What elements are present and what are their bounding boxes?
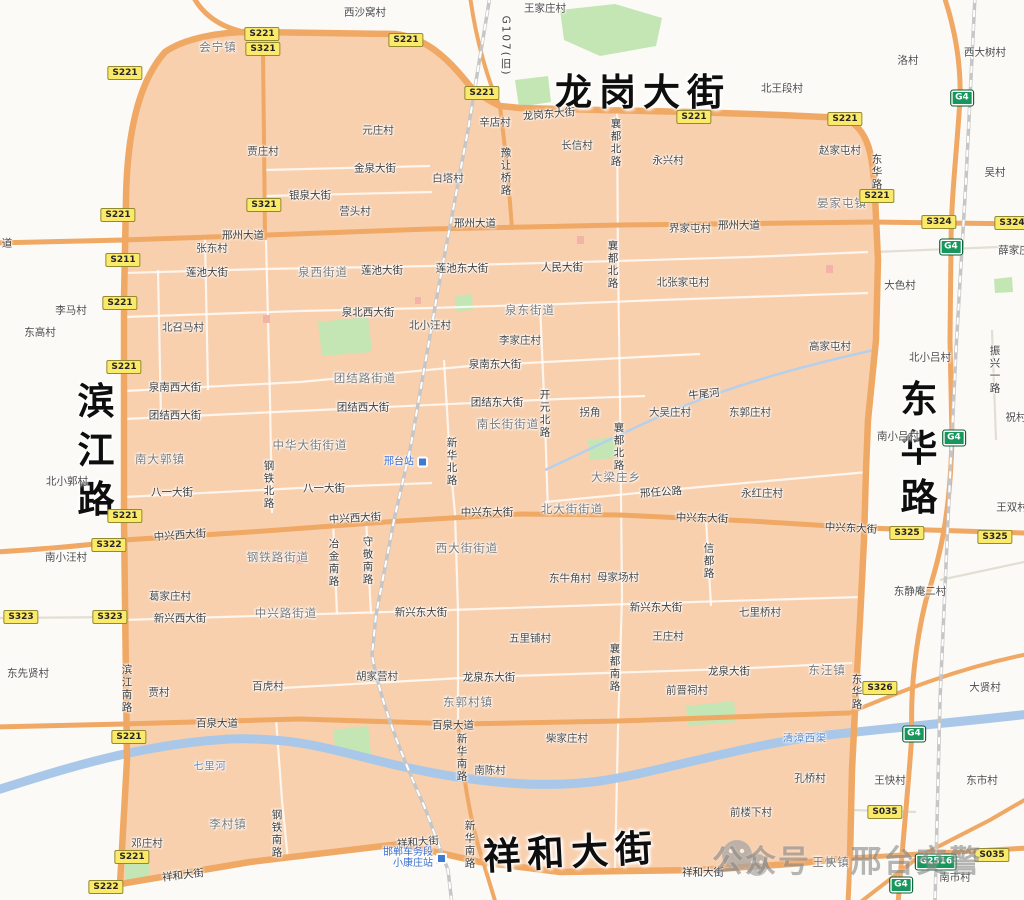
village-label: 东静庵二村	[894, 584, 947, 599]
route-shield: S321	[246, 198, 281, 212]
village-label: 李家庄村	[499, 333, 541, 348]
road-label: 新兴东大街	[630, 600, 683, 615]
road-label: 泉北西大街	[342, 305, 395, 320]
railway-station-icon	[417, 457, 428, 468]
road-label-vertical: 钢铁南路	[270, 809, 285, 859]
road-label: 莲池东大街	[436, 261, 489, 276]
road-label: 泉南东大街	[469, 357, 522, 372]
village-label: 柴家庄村	[546, 731, 588, 746]
boundary-street-name: 龙岗大街	[555, 62, 731, 116]
village-label: 南陈村	[474, 763, 506, 778]
village-label: 南小汪村	[45, 550, 87, 565]
village-label: 洛村	[898, 53, 919, 68]
station-name-line: 邯郸车务段	[383, 847, 433, 858]
village-label: 永兴村	[652, 153, 684, 168]
village-label: 辛店村	[479, 115, 511, 130]
village-label: 西沙窝村	[344, 5, 386, 20]
road-label: 团结西大街	[337, 400, 390, 415]
village-label: 王快村	[874, 773, 906, 788]
station-name-line: 邢台站	[384, 457, 414, 468]
boundary-street-name: 祥和大街	[482, 817, 661, 880]
route-shield: S221	[464, 86, 499, 100]
route-shield: S323	[92, 610, 127, 624]
village-label: 东市村	[966, 773, 998, 788]
road-label: 中兴东大街	[461, 505, 514, 520]
village-label: 贾村	[149, 685, 170, 700]
village-label: 邓庄村	[131, 836, 163, 851]
road-label: 邢州大道	[718, 218, 760, 233]
village-label: 营头村	[339, 204, 371, 219]
village-label: 王家庄村	[524, 1, 566, 16]
village-label: 北召马村	[162, 320, 204, 335]
village-label: 前晋祠村	[666, 683, 708, 698]
road-label: 牛尾河	[688, 385, 721, 403]
river-label: 清漳西渠	[783, 730, 827, 745]
road-label: 道	[2, 236, 13, 251]
village-label: 祝村	[1006, 410, 1024, 425]
town-label: 中兴路街道	[255, 605, 318, 621]
town-label: 南长街街道	[477, 416, 540, 432]
road-label-vertical: 守敬南路	[361, 536, 376, 586]
road-label: 团结东大街	[471, 395, 524, 410]
route-shield: S221	[102, 296, 137, 310]
road-label: 百泉大道	[196, 716, 238, 731]
route-shield: S222	[88, 880, 123, 894]
road-label-vertical: 振兴一路	[988, 345, 1003, 395]
village-label: 七里桥村	[739, 605, 781, 620]
road-label-vertical: 开元北路	[538, 389, 553, 439]
station-name: 邯郸车务段小康庄站	[383, 847, 433, 869]
road-label: 莲池大街	[186, 265, 228, 280]
road-label: 八一大街	[303, 481, 345, 496]
road-label: 八一大街	[151, 485, 193, 500]
road-label: 龙泉大街	[708, 664, 750, 679]
route-shield: S211	[105, 253, 140, 267]
village-label: 南小吕村	[877, 429, 919, 444]
railway-station-label: 邯郸车务段小康庄站	[383, 847, 447, 869]
village-label: 大色村	[884, 278, 916, 293]
route-shield: S321	[245, 42, 280, 56]
village-label: 贾庄村	[247, 144, 279, 159]
town-label: 李村镇	[209, 816, 247, 832]
town-label: 泉西街道	[298, 264, 348, 280]
road-label: 新兴东大街	[395, 605, 448, 620]
road-label: 百泉大道	[432, 718, 474, 733]
road-label: 中兴东大街	[824, 519, 877, 537]
village-label: 长信村	[561, 138, 593, 153]
route-shield: S221	[106, 360, 141, 374]
town-label: 钢铁路街道	[247, 549, 310, 565]
village-label: 东郭庄村	[729, 405, 771, 420]
village-label: 高家屯村	[809, 339, 851, 354]
route-shield: G4	[939, 239, 963, 256]
road-label: 邢州大道	[454, 216, 496, 231]
road-label-vertical: 钢铁北路	[262, 460, 277, 510]
route-shield: S221	[114, 850, 149, 864]
village-label: 北小吕村	[909, 350, 951, 365]
village-label: 北王段村	[761, 81, 803, 96]
road-label: 祥和大街	[161, 865, 205, 885]
railway-station-icon	[436, 853, 447, 864]
village-label: 五里铺村	[509, 631, 551, 646]
town-label: 北大街街道	[541, 501, 604, 517]
village-label: 大贤村	[969, 680, 1001, 695]
road-label: 莲池大街	[361, 263, 403, 278]
village-label: 永红庄村	[741, 486, 783, 501]
route-shield: S325	[889, 526, 924, 540]
road-label-vertical: 襄都北路	[612, 422, 627, 472]
river-label: 七里河	[194, 758, 227, 773]
route-shield: S221	[244, 27, 279, 41]
town-label: 泉东街道	[505, 302, 555, 318]
road-label: 泉南西大街	[149, 380, 202, 395]
road-label: 中兴东大街	[676, 510, 729, 527]
route-shield: G4	[902, 726, 926, 743]
route-shield: S324	[994, 216, 1024, 230]
road-label: 团结西大街	[149, 408, 202, 423]
station-name-line: 小康庄站	[383, 858, 433, 869]
road-label: 中兴西大街	[153, 526, 206, 545]
xingtai-restriction-zone-map: 龙岗大街滨江路东华路祥和大街会宁镇晏家屯镇南大郭镇大梁庄乡李村镇东郭村镇东汪镇王…	[0, 0, 1024, 900]
road-label: 新兴西大街	[154, 611, 207, 626]
road-label-vertical: 新华南路	[455, 733, 470, 783]
road-label-vertical: 襄都北路	[609, 118, 624, 168]
road-label-vertical: 襄都北路	[606, 240, 621, 290]
route-shield: S035	[867, 805, 902, 819]
route-shield: S221	[111, 730, 146, 744]
village-label: 王双村	[996, 500, 1024, 515]
route-shield: S326	[862, 681, 897, 695]
road-label-vertical: 冶金南路	[327, 538, 342, 588]
route-shield: S324	[921, 215, 956, 229]
village-label: 孔桥村	[794, 771, 826, 786]
road-label: 中兴西大街	[328, 509, 381, 527]
road-label: 龙岗东大街	[522, 104, 576, 124]
route-shield: S221	[676, 110, 711, 124]
village-label: 拐角	[580, 405, 601, 420]
route-shield: S221	[827, 112, 862, 126]
village-label: 北小汪村	[409, 318, 451, 333]
route-shield: S221	[107, 509, 142, 523]
town-label: 中华大街街道	[273, 437, 348, 453]
village-label: 东牛角村	[549, 571, 591, 586]
route-shield: S221	[107, 66, 142, 80]
route-shield: G4	[942, 430, 966, 447]
road-label-vertical: 滨江南路	[120, 664, 135, 714]
road-label-vertical: 襄都南路	[608, 643, 623, 693]
village-label: 大吴庄村	[649, 405, 691, 420]
town-label: 团结路街道	[334, 370, 397, 386]
road-label-vertical: G107(旧)	[499, 16, 514, 77]
village-label: 白塔村	[432, 171, 464, 186]
road-label: 邢任公路	[640, 483, 683, 501]
village-label: 前楼下村	[730, 805, 772, 820]
route-shield: S221	[100, 208, 135, 222]
village-label: 界家屯村	[669, 221, 711, 236]
station-name: 邢台站	[384, 457, 414, 468]
road-label-vertical: 东华路	[870, 153, 885, 191]
town-label: 东汪镇	[808, 662, 846, 678]
village-label: 东先贤村	[7, 666, 49, 681]
village-label: 北张家屯村	[657, 275, 710, 290]
road-label-vertical: 豫让桥路	[499, 147, 514, 197]
village-label: 百虎村	[252, 679, 284, 694]
road-label-vertical: 新华北路	[445, 437, 460, 487]
village-label: 张东村	[196, 241, 228, 256]
village-label: 李马村	[55, 303, 87, 318]
route-shield: S325	[977, 530, 1012, 544]
town-label: 西大街街道	[436, 540, 499, 556]
road-label: 龙泉东大街	[463, 670, 516, 685]
route-shield: S323	[3, 610, 38, 624]
boundary-street-name: 东华路	[888, 380, 942, 527]
village-label: 王庄村	[652, 629, 684, 644]
route-shield: S221	[388, 33, 423, 47]
village-label: 赵家屯村	[819, 143, 861, 158]
village-label: 母家场村	[597, 570, 639, 585]
route-shield: G4	[950, 90, 974, 107]
map-labels-layer: 龙岗大街滨江路东华路祥和大街会宁镇晏家屯镇南大郭镇大梁庄乡李村镇东郭村镇东汪镇王…	[0, 0, 1024, 900]
village-label: 胡家营村	[356, 669, 398, 684]
village-label: 吴村	[985, 165, 1006, 180]
town-label: 南大郭镇	[135, 451, 185, 467]
town-label: 会宁镇	[199, 39, 237, 55]
route-shield: S322	[91, 538, 126, 552]
village-label: 东高村	[24, 325, 56, 340]
road-label: 银泉大街	[289, 188, 331, 203]
village-label: 北小郭村	[46, 474, 88, 489]
road-label: 金泉大街	[354, 161, 396, 176]
town-label: 东郭村镇	[443, 694, 493, 710]
village-label: 元庄村	[362, 123, 394, 138]
road-label-vertical: 新华南路	[463, 820, 478, 870]
boundary-street-name: 滨江路	[65, 382, 119, 529]
village-label: 薛家庄	[998, 243, 1024, 258]
village-label: 葛家庄村	[149, 589, 191, 604]
road-label-vertical: 信都路	[702, 542, 717, 580]
watermark: 公众号 · 邢台交警	[712, 836, 982, 881]
route-shield: S221	[859, 189, 894, 203]
railway-station-label: 邢台站	[384, 457, 428, 468]
road-label: 邢州大道	[222, 228, 264, 243]
road-label: 人民大街	[541, 260, 583, 275]
village-label: 西大树村	[964, 45, 1006, 60]
watermark-text: 公众号 · 邢台交警	[712, 836, 982, 881]
